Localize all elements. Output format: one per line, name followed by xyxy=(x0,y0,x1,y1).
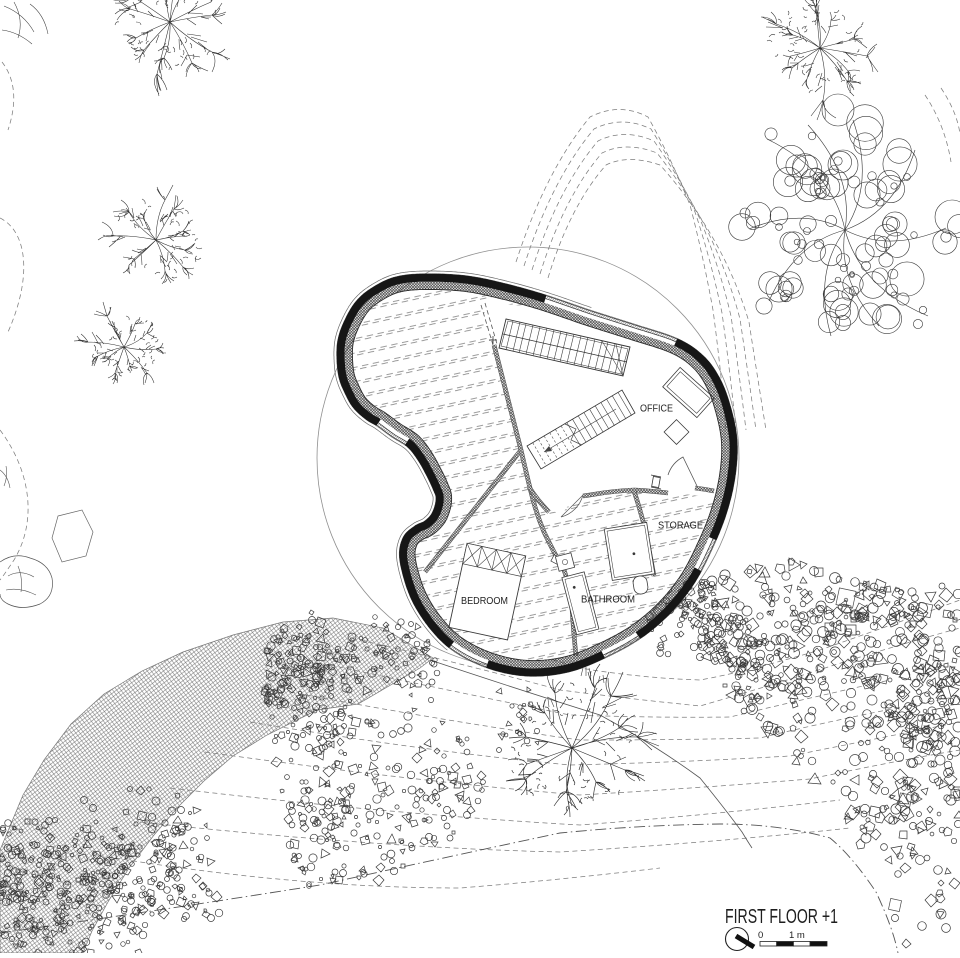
svg-text:OFFICE: OFFICE xyxy=(640,404,673,415)
svg-text:STORAGE: STORAGE xyxy=(658,521,703,532)
svg-text:BEDROOM: BEDROOM xyxy=(461,596,508,607)
svg-text:BATHROOM: BATHROOM xyxy=(581,595,635,606)
svg-text:0: 0 xyxy=(758,930,763,941)
svg-text:1 m: 1 m xyxy=(789,930,805,941)
svg-text:FIRST FLOOR +1: FIRST FLOOR +1 xyxy=(725,906,838,928)
